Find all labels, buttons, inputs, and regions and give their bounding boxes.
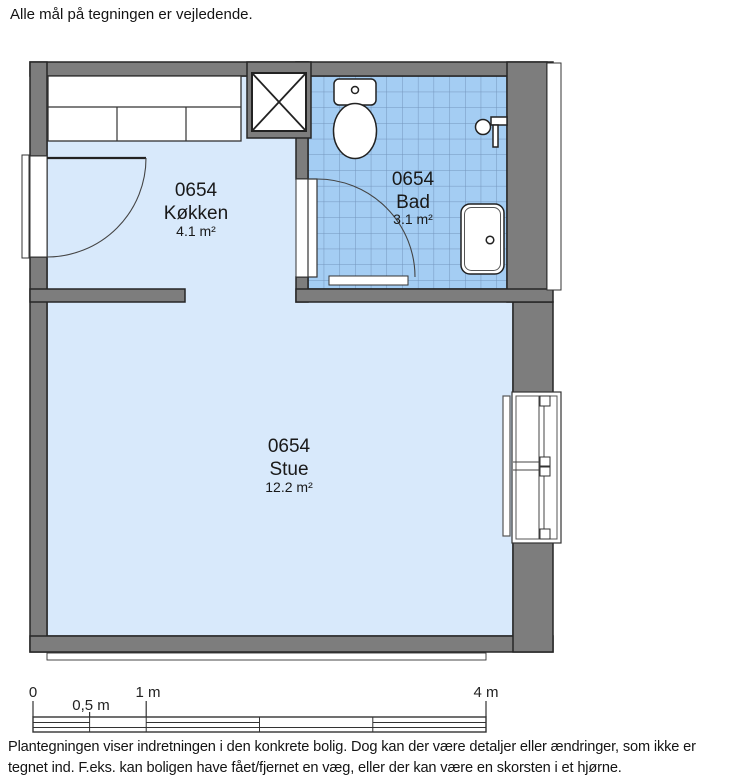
bathroom-threshold	[329, 276, 408, 285]
bathtub	[461, 204, 504, 274]
window-fitting-middle-lower	[540, 467, 550, 476]
window-fitting-middle-upper	[540, 457, 550, 466]
bathroom-bottom-wall	[296, 289, 553, 302]
shaft-x-box	[252, 73, 306, 131]
bathroom-room-id: 0654	[392, 169, 435, 190]
bathroom-door-leaf	[308, 179, 317, 277]
entrance-door-opening	[30, 156, 47, 257]
living-room-label: 0654 Stue 12.2 m²	[265, 436, 313, 495]
living-room-name: Stue	[269, 459, 308, 480]
scale-label-1m: 1 m	[135, 684, 160, 701]
living-room-id: 0654	[268, 436, 311, 457]
radiator	[503, 396, 510, 536]
left-wall-lower	[30, 257, 47, 652]
kitchen-partition-wall	[30, 289, 185, 302]
scale-label-4m: 4 m	[473, 684, 498, 701]
kitchen-room-id: 0654	[175, 180, 218, 201]
bathroom-room-area: 3.1 m²	[393, 211, 433, 227]
bathroom-door-opening	[296, 179, 308, 277]
bathroom-label: 0654 Bad 3.1 m²	[392, 169, 435, 227]
window-fitting-bottom	[540, 529, 550, 539]
floor-plan: 0654 Køkken 4.1 m² 0654 Bad 3.1 m² 0654 …	[0, 0, 739, 783]
right-wall-above-window	[513, 302, 553, 393]
bottom-wall	[30, 636, 553, 652]
left-wall-upper	[30, 62, 47, 156]
living-room-area: 12.2 m²	[265, 479, 313, 495]
scale-bar: 0 0,5 m 1 m 4 m	[29, 684, 499, 732]
scale-label-05m: 0,5 m	[72, 697, 110, 714]
scale-label-0: 0	[29, 684, 37, 701]
disclaimer-text: Plantegningen viser indretningen i den k…	[8, 737, 737, 778]
kitchen-room-area: 4.1 m²	[176, 223, 216, 239]
kitchen-room-name: Køkken	[164, 203, 228, 224]
toilet	[334, 79, 377, 159]
entrance-door-outer-casing	[22, 155, 29, 258]
right-side-panel	[547, 63, 561, 290]
right-wall-bathroom	[507, 62, 547, 302]
bathroom-room-name: Bad	[396, 192, 430, 213]
living-room-window	[512, 392, 561, 543]
bottom-outer-strip	[47, 653, 486, 660]
kitchen-counter	[48, 76, 241, 141]
window-fitting-top	[540, 396, 550, 406]
right-wall-below-window	[513, 542, 553, 652]
